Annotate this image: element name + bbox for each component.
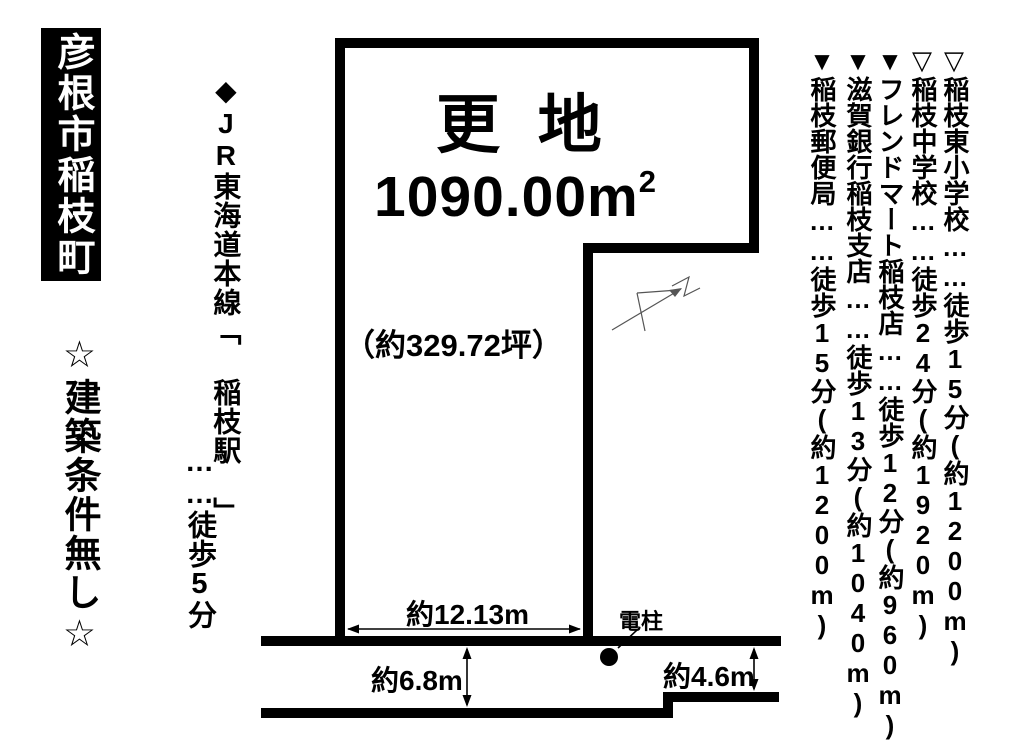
road-edge-bottom — [261, 697, 779, 713]
facility-item: ▼稲枝郵便局……徒歩15分(約1200m) — [809, 46, 835, 640]
utility-pole-dot — [600, 648, 618, 666]
location-badge-text: 彦根市稲枝町 — [51, 32, 91, 278]
road-width-right-label: 約4.6m — [663, 655, 755, 695]
plot-status-label: 更 地 — [436, 74, 612, 166]
land-plan-flyer: 彦根市稲枝町 ☆建築条件無し☆ ◆JR東海道本線「 稲枝駅 」 ……徒歩5分 更… — [0, 0, 1024, 754]
building-condition-note: ☆建築条件無し☆ — [52, 333, 98, 657]
plot-area-number: 1090.00 — [374, 165, 587, 229]
location-badge: 彦根市稲枝町 — [41, 28, 101, 281]
station-access-walk: ……徒歩5分 — [184, 446, 214, 629]
north-arrow — [612, 277, 700, 331]
plot-area: 1090.00m2 — [374, 164, 656, 230]
road-width-left-arrow — [463, 647, 472, 707]
facility-item: ▽稲枝東小学校……徒歩15分(約1200m) — [942, 46, 968, 666]
plot-area-exponent: 2 — [639, 164, 656, 199]
plot-area-unit: m — [587, 165, 639, 229]
station-access-line: ◆JR東海道本線「 稲枝駅 」 — [211, 74, 240, 526]
road-width-left-label: 約6.8m — [371, 659, 463, 699]
facility-item: ▽稲枝中学校……徒歩24分(約1920m) — [910, 46, 936, 640]
utility-pole-label: 電柱 — [619, 604, 663, 636]
facility-item: ▼滋賀銀行稲枝支店……徒歩13分(約1040m) — [845, 46, 871, 718]
facility-item: ▼フレンドマート稲枝店……徒歩12分(約960m) — [877, 46, 903, 740]
frontage-dimension-label: 約12.13m — [406, 593, 529, 633]
plot-area-tsubo: （約329.72坪） — [344, 320, 563, 365]
